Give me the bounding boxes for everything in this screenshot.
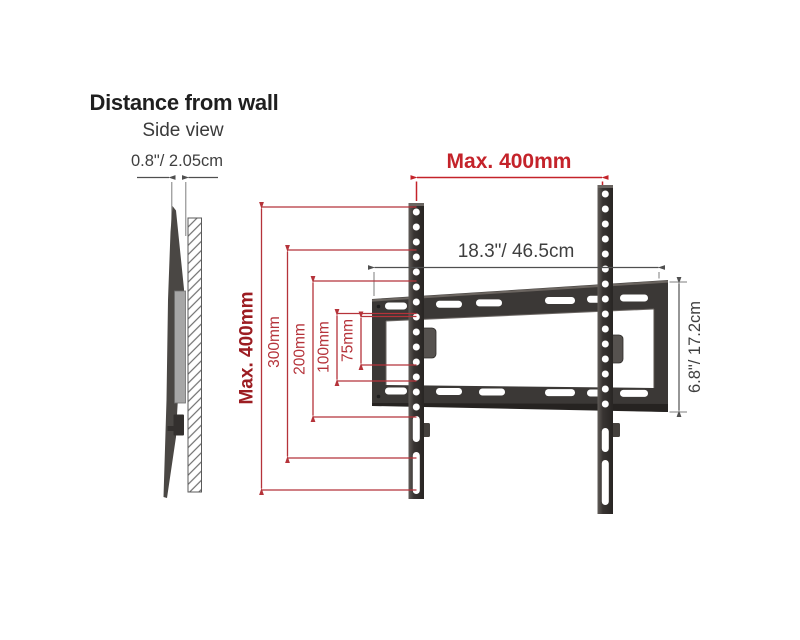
spacer-plate [175,291,186,403]
right-vesa-rail [598,185,614,514]
plate-width-dimension-label: 18.3"/ 46.5cm [458,241,575,262]
max-width-dimension [417,178,603,202]
plate-height-dimension [670,282,688,412]
left-vesa-rail [409,203,425,499]
left-rail-slot [413,416,420,442]
vesa-200-label: 200mm [292,323,309,375]
plate-height-dimension-label: 6.8"/ 17.2cm [686,301,704,393]
vesa-100-label: 100mm [316,321,333,373]
page-title: Distance from wall [90,90,279,115]
diagram-canvas: Distance from wall Side view 0.8"/ 2.05c… [0,0,800,640]
right-rail-holes [602,191,609,408]
max-height-dimension-label: Max. 400mm [237,291,258,404]
side-view-diagram: 0.8"/ 2.05cm [131,152,223,498]
wall-gap-dimension-label: 0.8"/ 2.05cm [131,152,223,170]
vesa-300-label: 300mm [266,316,283,368]
right-rail-slot [602,428,609,452]
wall-cross-section [188,218,202,492]
plate-screw-dot [377,305,381,309]
product-dimension-diagram: Distance from wall Side view 0.8"/ 2.05c… [0,0,800,640]
front-view-diagram: 18.3"/ 46.5cm 6.8"/ 17.2cm Max. 400mm [237,150,705,514]
vesa-75-label: 75mm [340,319,357,362]
page-subtitle: Side view [142,120,224,141]
right-rail-slot [602,460,609,505]
max-width-dimension-label: Max. 400mm [447,150,572,173]
plate-screw-dot [377,395,381,399]
